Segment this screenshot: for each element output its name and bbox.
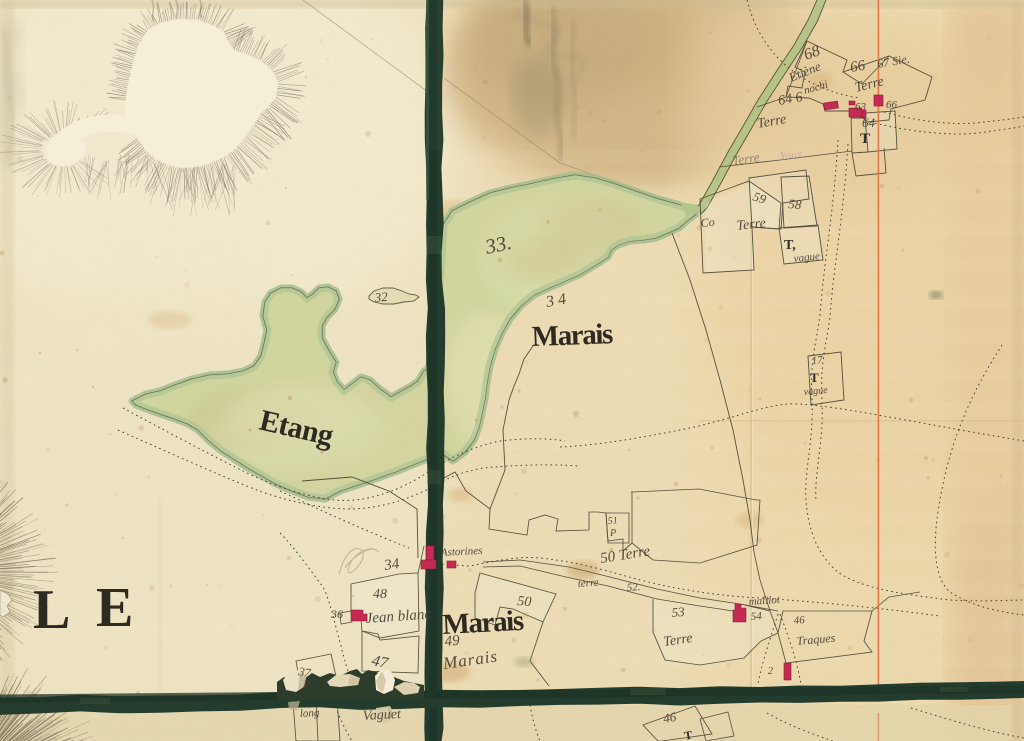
svg-text:32: 32 [373,289,389,305]
svg-text:P: P [609,528,616,539]
svg-text:63: 63 [855,101,867,113]
svg-text:terre: terre [577,577,599,590]
svg-text:58: 58 [788,196,803,212]
svg-text:36: 36 [330,607,343,621]
svg-text:Marais: Marais [442,605,525,641]
svg-text:Marais: Marais [531,318,613,353]
svg-text:Youx: Youx [779,147,804,163]
svg-text:46: 46 [793,614,806,627]
svg-text:T: T [860,131,870,147]
svg-text:53: 53 [671,604,686,620]
svg-text:52.: 52. [626,581,641,594]
svg-text:54: 54 [750,610,762,623]
svg-text:long: long [300,707,321,720]
svg-text:51: 51 [607,515,618,527]
svg-text:2: 2 [768,666,773,677]
svg-text:E: E [96,577,133,639]
svg-text:vague: vague [803,385,828,398]
svg-text:L: L [33,579,70,641]
svg-text:malilot: malilot [748,594,781,608]
svg-text:P: P [302,679,310,691]
svg-text:T: T [810,370,819,385]
svg-text:Terre: Terre [736,216,767,234]
svg-text:64: 64 [862,115,876,130]
svg-text:T,: T, [784,238,796,253]
svg-text:66: 66 [886,99,898,111]
svg-text:Vaguet: Vaguet [362,707,402,724]
svg-text:34: 34 [382,556,401,574]
svg-text:3 4: 3 4 [544,291,568,311]
svg-text:Astorines: Astorines [440,545,483,559]
svg-text:Co: Co [700,215,715,230]
svg-text:17: 17 [811,354,824,367]
svg-text:48: 48 [373,587,387,602]
